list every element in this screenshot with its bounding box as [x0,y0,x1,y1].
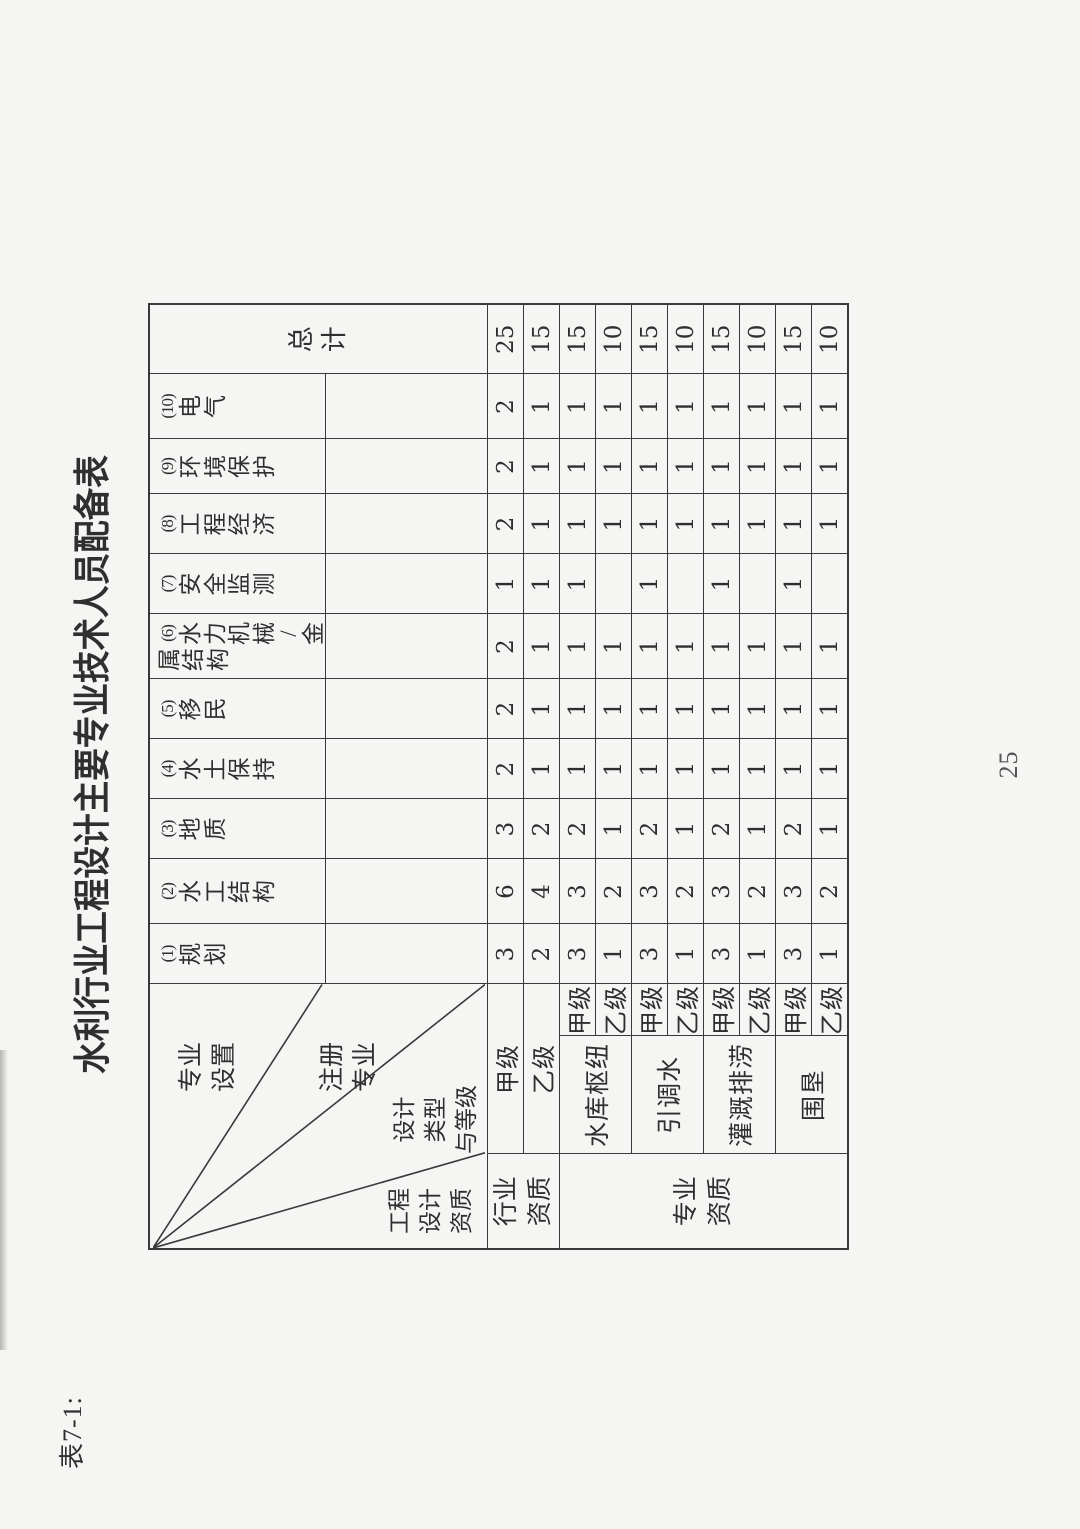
col-header-3: (3)地质 [149,799,326,859]
data-cell: 1 [632,374,668,439]
vertical-text-glyph: 工 [204,880,227,903]
vertical-text-glyph: 民 [204,698,227,721]
vertical-text-column: 属结构 [158,648,325,671]
vertical-text-glyph: 安 [179,573,202,596]
vertical-text-glyph: 力 [204,622,227,645]
data-cell: 1 [668,374,704,439]
personnel-allocation-table: 专业设置注册专业设计类型与等级工程设计资质(1)规划(2)水工结构(3)地质(4… [148,303,849,1250]
data-cell: 1 [668,924,704,984]
vertical-text-glyph: / [277,630,300,636]
personnel-table-container: 专业设置注册专业设计类型与等级工程设计资质(1)规划(2)水工结构(3)地质(4… [148,303,849,1250]
vertical-text-column: (3)地质 [158,818,227,841]
data-cell: 1 [812,924,849,984]
data-cell: 2 [596,859,632,924]
data-cell: 1 [812,614,849,679]
col-header-text: (3)地质 [158,800,227,859]
registered-specialty-cell [326,554,488,614]
col-header-6: (6)水力机械/金属结构 [149,614,326,679]
data-cell: 1 [632,679,668,739]
data-cell: 2 [488,494,524,554]
vertical-text-glyph: 计 [319,326,352,352]
vertical-text-glyph: 划 [204,943,227,966]
data-cell: 1 [740,924,776,984]
grade-cell: 乙级 [524,984,560,1154]
data-cell: 2 [488,679,524,739]
data-cell: 1 [632,739,668,799]
table-row: 专业资质水库枢纽甲级332111111115 [560,304,596,1249]
data-cell: 1 [668,739,704,799]
data-cell: 1 [596,799,632,859]
data-cell: 1 [740,614,776,679]
data-cell: 3 [632,924,668,984]
data-cell: 1 [560,494,596,554]
vertical-text-glyph: 程 [204,513,227,536]
vertical-text-column: (10)电气 [158,394,227,418]
vertical-text-glyph: (7) [158,576,178,593]
data-cell: 1 [560,374,596,439]
data-cell: 1 [812,439,849,494]
data-cell: 1 [668,439,704,494]
row-subgroup-label: 水库枢纽 [560,1036,632,1154]
vertical-text-column: 总计 [286,326,352,352]
data-cell: 1 [740,494,776,554]
data-cell: 1 [704,374,740,439]
total-cell: 15 [776,304,812,374]
registered-specialty-cell [326,374,488,439]
registered-specialty-cell [326,494,488,554]
col-header-1: (1)规划 [149,924,326,984]
col-header-text: (5)移民 [158,680,227,739]
data-cell: 1 [668,494,704,554]
vertical-text-glyph: 持 [253,758,276,781]
vertical-text-column: (2)水工结构 [158,880,276,903]
data-cell: 1 [596,374,632,439]
data-cell: 2 [812,859,849,924]
data-cell: 6 [488,859,524,924]
data-cell: 1 [776,374,812,439]
data-cell: 1 [524,679,560,739]
diagonal-corner-cell: 专业设置注册专业设计类型与等级工程设计资质 [149,984,488,1249]
registered-specialty-cell [326,799,488,859]
data-cell: 1 [560,679,596,739]
vertical-text-glyph: (10) [158,394,178,418]
vertical-text-glyph: (6) [158,625,178,642]
vertical-text-glyph: 监 [228,573,251,596]
data-cell: 1 [668,799,704,859]
data-cell: 1 [740,374,776,439]
data-cell: 1 [668,679,704,739]
total-cell: 15 [524,304,560,374]
data-cell: 2 [488,374,524,439]
vertical-text-glyph: (2) [158,883,178,900]
data-cell: 1 [596,679,632,739]
vertical-text-column: (8)工程经济 [158,513,276,536]
data-cell: 3 [704,859,740,924]
data-cell: 1 [596,614,632,679]
data-cell: 2 [488,439,524,494]
data-cell: 1 [632,494,668,554]
registered-specialty-cell [326,859,488,924]
row-group-label: 专业资质 [560,1154,849,1249]
vertical-text-glyph: 移 [179,698,202,721]
vertical-text-glyph: 护 [253,455,276,478]
col-header-text: (9)环境保护 [158,440,276,494]
corner-label-registered-specialty: 注册专业 [316,1042,384,1092]
vertical-text-glyph: (9) [158,458,178,475]
vertical-text-glyph: 属 [158,648,181,671]
row-subgroup-label: 围垦 [776,1036,849,1154]
registered-specialty-cell [326,679,488,739]
vertical-text-glyph: 结 [228,880,251,903]
total-cell: 15 [632,304,668,374]
data-cell: 1 [596,494,632,554]
data-cell: 3 [560,859,596,924]
rotated-landscape-sheet: 表7-1: 水利行业工程设计主要专业技术人员配备表 专业设置注册专业设计类型与等… [0,0,1080,1529]
vertical-text-glyph: 金 [302,622,325,645]
vertical-text-glyph: 测 [253,573,276,596]
vertical-text-glyph: (3) [158,821,178,838]
col-header-7: (7)安全监测 [149,554,326,614]
data-cell [812,554,849,614]
data-cell: 1 [524,374,560,439]
vertical-text-column: (6)水力机械/金 [158,622,325,645]
col-header-4: (4)水土保持 [149,739,326,799]
data-cell: 1 [704,494,740,554]
vertical-text-glyph: 境 [204,455,227,478]
vertical-text-glyph: 总 [286,326,319,352]
data-cell: 1 [704,439,740,494]
registered-specialty-cell [326,614,488,679]
data-cell: 1 [524,614,560,679]
data-cell: 1 [632,614,668,679]
vertical-text-glyph: (4) [158,761,178,778]
data-cell: 1 [704,679,740,739]
vertical-text-glyph: 土 [204,758,227,781]
data-cell: 1 [488,554,524,614]
vertical-text-column: (5)移民 [158,698,227,721]
registered-specialty-cell [326,439,488,494]
vertical-text-glyph: 水 [179,880,202,903]
col-header-text: (7)安全监测 [158,555,276,614]
data-cell: 1 [524,439,560,494]
vertical-text-glyph: 工 [179,513,202,536]
data-cell: 3 [488,924,524,984]
col-header-text: (2)水工结构 [158,860,276,924]
data-cell: 1 [776,679,812,739]
grade-cell: 甲级 [632,984,668,1036]
data-cell: 3 [488,799,524,859]
data-cell: 2 [704,799,740,859]
grade-cell: 乙级 [812,984,849,1036]
data-cell: 1 [812,799,849,859]
row-subgroup-label: 灌溉排涝 [704,1036,776,1154]
table-row: 乙级242111111115 [524,304,560,1249]
corner-label-design-qualification: 工程设计资质 [384,1188,477,1234]
col-header-text: (10)电气 [158,375,227,439]
scanned-document-page: { "page": { "ref_label": "表7-1:", "title… [0,0,1080,1529]
vertical-text-glyph: 保 [228,758,251,781]
table-row: 行业资质甲级363222122225 [488,304,524,1249]
table-row: 灌溉排涝甲级332111111115 [704,304,740,1249]
grade-cell: 甲级 [488,984,524,1154]
data-cell: 1 [704,739,740,799]
data-cell: 3 [704,924,740,984]
data-cell: 1 [776,554,812,614]
data-cell: 2 [632,799,668,859]
data-cell: 1 [740,679,776,739]
vertical-text-glyph: 机 [228,622,251,645]
data-cell: 4 [524,859,560,924]
data-cell: 1 [632,554,668,614]
vertical-text-glyph: 规 [179,943,202,966]
total-cell: 25 [488,304,524,374]
data-cell: 2 [740,859,776,924]
data-cell: 3 [632,859,668,924]
corner-label-design-type-grade: 设计类型与等级 [389,1085,482,1154]
data-cell [596,554,632,614]
vertical-text-column: (4)水土保持 [158,758,276,781]
data-cell: 1 [560,739,596,799]
data-cell: 1 [776,439,812,494]
data-cell: 1 [740,739,776,799]
data-cell [740,554,776,614]
vertical-text-column: (9)环境保护 [158,455,276,478]
col-header-2: (2)水工结构 [149,859,326,924]
data-cell: 2 [776,799,812,859]
total-header-text: 总计 [286,305,352,374]
total-cell: 10 [668,304,704,374]
row-group-label: 行业资质 [488,1154,560,1249]
grade-cell: 乙级 [596,984,632,1036]
col-header-10: (10)电气 [149,374,326,439]
data-cell: 1 [524,494,560,554]
row-group-label-text: 专业资质 [670,1155,738,1249]
grade-cell: 甲级 [560,984,596,1036]
page-title: 水利行业工程设计主要专业技术人员配备表 [62,92,116,1438]
data-cell: 2 [524,924,560,984]
data-cell: 1 [560,439,596,494]
data-cell: 1 [560,554,596,614]
vertical-text-glyph: 结 [182,648,205,671]
data-cell: 1 [596,924,632,984]
data-cell: 1 [524,739,560,799]
data-cell: 3 [560,924,596,984]
total-cell: 10 [596,304,632,374]
registered-specialty-cell [326,739,488,799]
data-cell: 1 [704,554,740,614]
data-cell: 1 [740,799,776,859]
data-cell: 2 [560,799,596,859]
vertical-text-glyph: 水 [179,758,202,781]
table-row: 引调水甲级332111111115 [632,304,668,1249]
grade-cell: 甲级 [704,984,740,1036]
data-cell: 1 [560,614,596,679]
data-cell: 1 [776,739,812,799]
col-header-9: (9)环境保护 [149,439,326,494]
data-cell: 1 [704,614,740,679]
vertical-text-glyph: 环 [179,455,202,478]
vertical-text-glyph: (5) [158,701,178,718]
vertical-text-glyph: 经 [228,513,251,536]
data-cell: 1 [812,679,849,739]
vertical-text-glyph: 济 [253,513,276,536]
col-header-text: (8)工程经济 [158,495,276,554]
corner-label-specialty-setup: 专业设置 [175,1042,243,1092]
data-cell: 1 [776,494,812,554]
data-cell: 2 [488,739,524,799]
data-cell: 1 [668,614,704,679]
data-cell: 1 [776,614,812,679]
data-cell [668,554,704,614]
page-number: 25 [994,0,1024,1529]
vertical-text-glyph: 保 [228,455,251,478]
vertical-text-glyph: 地 [179,818,202,841]
col-header-text: (4)水土保持 [158,740,276,799]
data-cell: 3 [776,924,812,984]
vertical-text-column: (7)安全监测 [158,573,276,596]
vertical-text-glyph: (8) [158,516,178,533]
col-header-text: (6)水力机械/金属结构 [158,615,325,679]
data-cell: 1 [596,439,632,494]
col-header-text: (1)规划 [158,925,227,984]
col-header-total: 总计 [149,304,488,374]
data-cell: 1 [812,374,849,439]
vertical-text-glyph: 电 [179,395,202,418]
data-cell: 1 [740,439,776,494]
vertical-text-column: (1)规划 [158,943,227,966]
total-cell: 10 [812,304,849,374]
data-cell: 2 [668,859,704,924]
grade-cell: 乙级 [668,984,704,1036]
data-cell: 2 [524,799,560,859]
data-cell: 1 [812,739,849,799]
diagonal-corner-box: 专业设置注册专业设计类型与等级工程设计资质 [153,985,485,1249]
data-cell: 1 [524,554,560,614]
data-cell: 1 [632,439,668,494]
total-cell: 15 [560,304,596,374]
data-cell: 1 [812,494,849,554]
row-subgroup-label: 引调水 [632,1036,704,1154]
header-row-specialties: 专业设置注册专业设计类型与等级工程设计资质(1)规划(2)水工结构(3)地质(4… [149,304,326,1249]
vertical-text-glyph: 械 [253,622,276,645]
vertical-text-glyph: 质 [204,818,227,841]
col-header-8: (8)工程经济 [149,494,326,554]
data-cell: 1 [596,739,632,799]
vertical-text-glyph: 全 [204,573,227,596]
grade-cell: 甲级 [776,984,812,1036]
col-header-5: (5)移民 [149,679,326,739]
total-cell: 10 [740,304,776,374]
data-cell: 2 [488,614,524,679]
data-cell: 3 [776,859,812,924]
vertical-text-glyph: 气 [204,395,227,418]
vertical-text-glyph: 构 [253,880,276,903]
grade-cell: 乙级 [740,984,776,1036]
row-group-label-text: 行业资质 [490,1155,558,1249]
vertical-text-glyph: (1) [158,946,178,963]
registered-specialty-cell [326,924,488,984]
table-row: 围垦甲级332111111115 [776,304,812,1249]
vertical-text-glyph: 构 [207,648,230,671]
total-cell: 15 [704,304,740,374]
vertical-text-glyph: 水 [179,622,202,645]
